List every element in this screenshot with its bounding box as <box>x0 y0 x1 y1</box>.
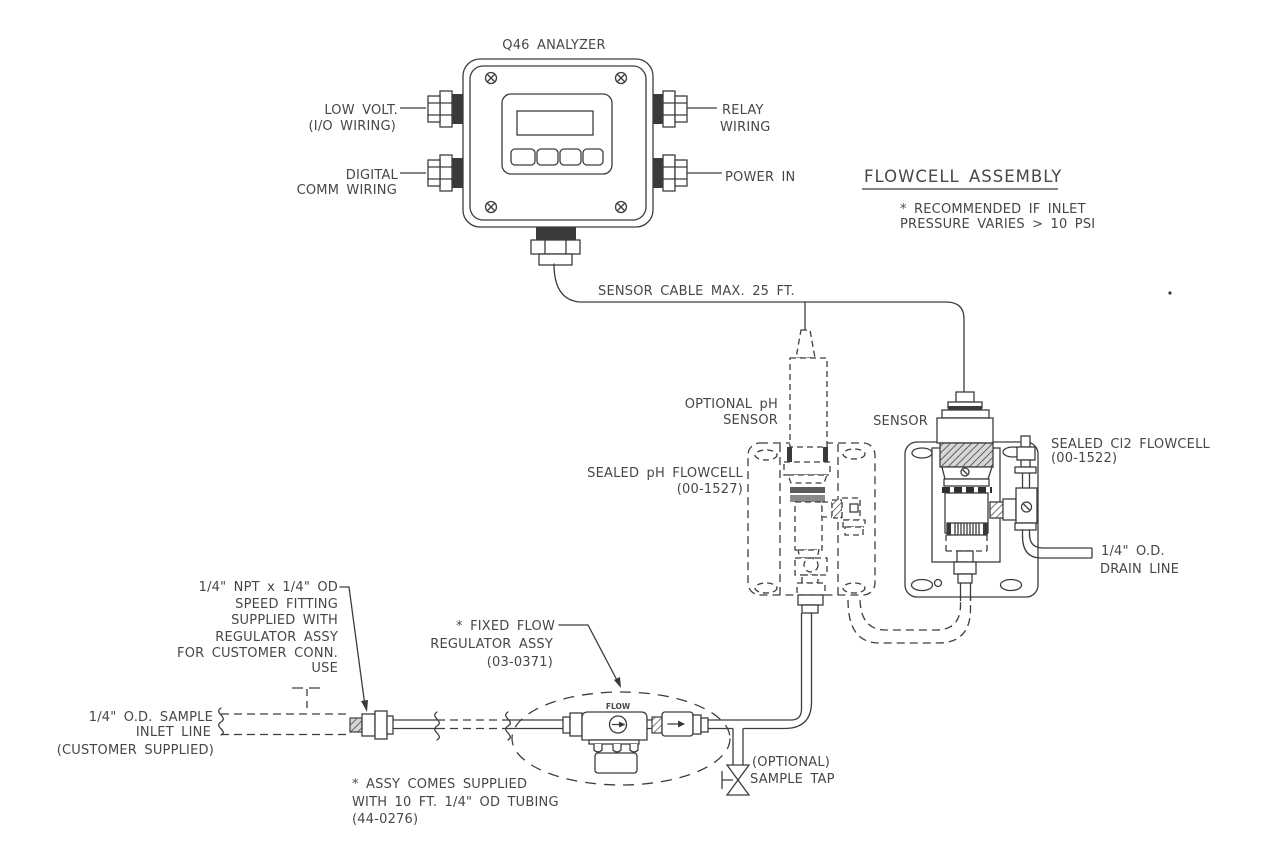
drawing-sheet: Q46 ANALYZER <box>0 0 1262 847</box>
plate-slot <box>912 580 933 591</box>
gland-digital-comm <box>428 155 463 191</box>
power-in-label: POWER IN <box>725 170 795 185</box>
cl2-flowcell-assembly: SENSOR SEALED Cl2 FLOWCELL (00-1522) 1/4… <box>873 392 1210 601</box>
piping-diagram: Q46 ANALYZER <box>0 0 1262 847</box>
flow-regulator-assembly: FLOW * FIXED FLOW REGULATOR ASSY (03-037… <box>352 619 730 827</box>
leader-arrowhead <box>361 700 368 712</box>
gland-low-volt <box>428 91 463 127</box>
plate-slot <box>755 450 777 460</box>
flow-marking: FLOW <box>606 702 631 711</box>
stray-dot <box>1168 291 1171 294</box>
sample-tap-valve <box>722 765 749 795</box>
relay-label-2: WIRING <box>720 120 771 135</box>
drain-line-label-1: 1/4" O.D. <box>1101 544 1165 559</box>
regulator-label-3: (03-0371) <box>487 655 553 670</box>
inlet-line-label-3: (CUSTOMER SUPPLIED) <box>57 743 214 758</box>
check-valve <box>652 712 708 736</box>
ph-sensor-label-1: OPTIONAL pH <box>685 397 778 412</box>
gland-power <box>653 155 687 191</box>
gland-relay <box>653 91 687 127</box>
tube-break-mark <box>435 712 440 740</box>
cell-window <box>947 523 987 535</box>
low-volt-label-2: (I/O WIRING) <box>309 119 396 134</box>
plate-slot <box>843 583 865 593</box>
fitting-note-5: FOR CUSTOMER CONN. <box>177 646 338 661</box>
lcd-display <box>517 111 593 135</box>
flowcell-assembly-heading: FLOWCELL ASSEMBLY * RECOMMENDED IF INLET… <box>862 167 1095 232</box>
button-4 <box>583 149 603 165</box>
speed-fitting <box>350 711 393 739</box>
fitting-note-1: 1/4" NPT x 1/4" OD <box>199 580 338 595</box>
button-2 <box>537 149 558 165</box>
tube-break-mark <box>506 712 511 740</box>
q46-analyzer: Q46 ANALYZER <box>297 38 796 265</box>
gland-sensor-cable <box>531 227 580 265</box>
heading-text: FLOWCELL ASSEMBLY <box>864 167 1062 186</box>
button-3 <box>560 149 581 165</box>
plate-slot <box>755 583 777 593</box>
sample-tap-label-2: SAMPLE TAP <box>750 772 835 787</box>
digital-label-2: COMM WIRING <box>297 183 397 198</box>
plate-slot <box>912 448 932 458</box>
plate-slot <box>843 449 865 459</box>
relay-label-1: RELAY <box>722 103 764 118</box>
cl2-sensor-label: SENSOR <box>873 414 928 429</box>
leader-arrowhead <box>614 677 621 688</box>
keypad-buttons <box>511 149 603 165</box>
drain-line-label-2: DRAIN LINE <box>1100 562 1179 577</box>
fitting-leader <box>340 587 365 706</box>
plate-slot <box>1001 580 1022 591</box>
ph-bottom-fitting <box>798 595 823 613</box>
fitting-note-2: SPEED FITTING <box>235 597 338 612</box>
sample-tap-branch <box>733 729 743 766</box>
ph-flowcell-label-1: SEALED pH FLOWCELL <box>587 466 743 481</box>
cl2-flowcell-label-2: (00-1522) <box>1051 451 1117 466</box>
fitting-note-3: SUPPLIED WITH <box>231 613 338 628</box>
cl2-flowcell-label-1: SEALED Cl2 FLOWCELL <box>1051 437 1211 452</box>
ph-flowcell-assembly: OPTIONAL pH SENSOR SEALED pH FLOWCELL (0… <box>587 330 875 613</box>
button-1 <box>511 149 535 165</box>
heading-note-1: * RECOMMENDED IF INLET <box>900 202 1086 217</box>
heading-note-2: PRESSURE VARIES > 10 PSI <box>900 217 1095 232</box>
cl2-port-nut <box>1003 499 1016 520</box>
inlet-section: 1/4" NPT x 1/4" OD SPEED FITTING SUPPLIE… <box>57 580 393 758</box>
plate-hole <box>935 580 942 587</box>
tubing-note-2: WITH 10 FT. 1/4" OD TUBING <box>352 795 559 810</box>
ph-flowcell-label-2: (00-1527) <box>677 482 743 497</box>
sensor-cable-label: SENSOR CABLE MAX. 25 FT. <box>598 284 795 299</box>
ph-sensor-label-2: SENSOR <box>723 413 778 428</box>
analyzer-title: Q46 ANALYZER <box>502 38 605 53</box>
sensor-cable: SENSOR CABLE MAX. 25 FT. <box>554 264 964 392</box>
sample-tap-label-1: (OPTIONAL) <box>752 755 830 770</box>
tubing-note-3: (44-0276) <box>352 812 418 827</box>
inlet-line-label-2: INLET LINE <box>136 725 211 740</box>
regulator-label-1: * FIXED FLOW <box>456 619 555 634</box>
low-volt-label-1: LOW VOLT. <box>324 103 398 118</box>
regulator-leader <box>559 625 619 684</box>
customer-inlet-tube <box>221 714 350 735</box>
tubing-note-1: * ASSY COMES SUPPLIED <box>352 777 527 792</box>
sensor-thread <box>940 443 993 467</box>
inlet-line-label-1: 1/4" O.D. SAMPLE <box>89 710 213 725</box>
fitting-note-4: REGULATOR ASSY <box>215 630 338 645</box>
cl2-inlet-port <box>990 502 1004 518</box>
digital-label-1: DIGITAL <box>346 168 399 183</box>
regulator-label-2: REGULATOR ASSY <box>430 637 553 652</box>
tube-break-mark <box>219 708 224 735</box>
optional-ph-sensor <box>787 330 828 465</box>
regulator-body <box>563 712 647 773</box>
fitting-note-6: USE <box>311 661 338 676</box>
